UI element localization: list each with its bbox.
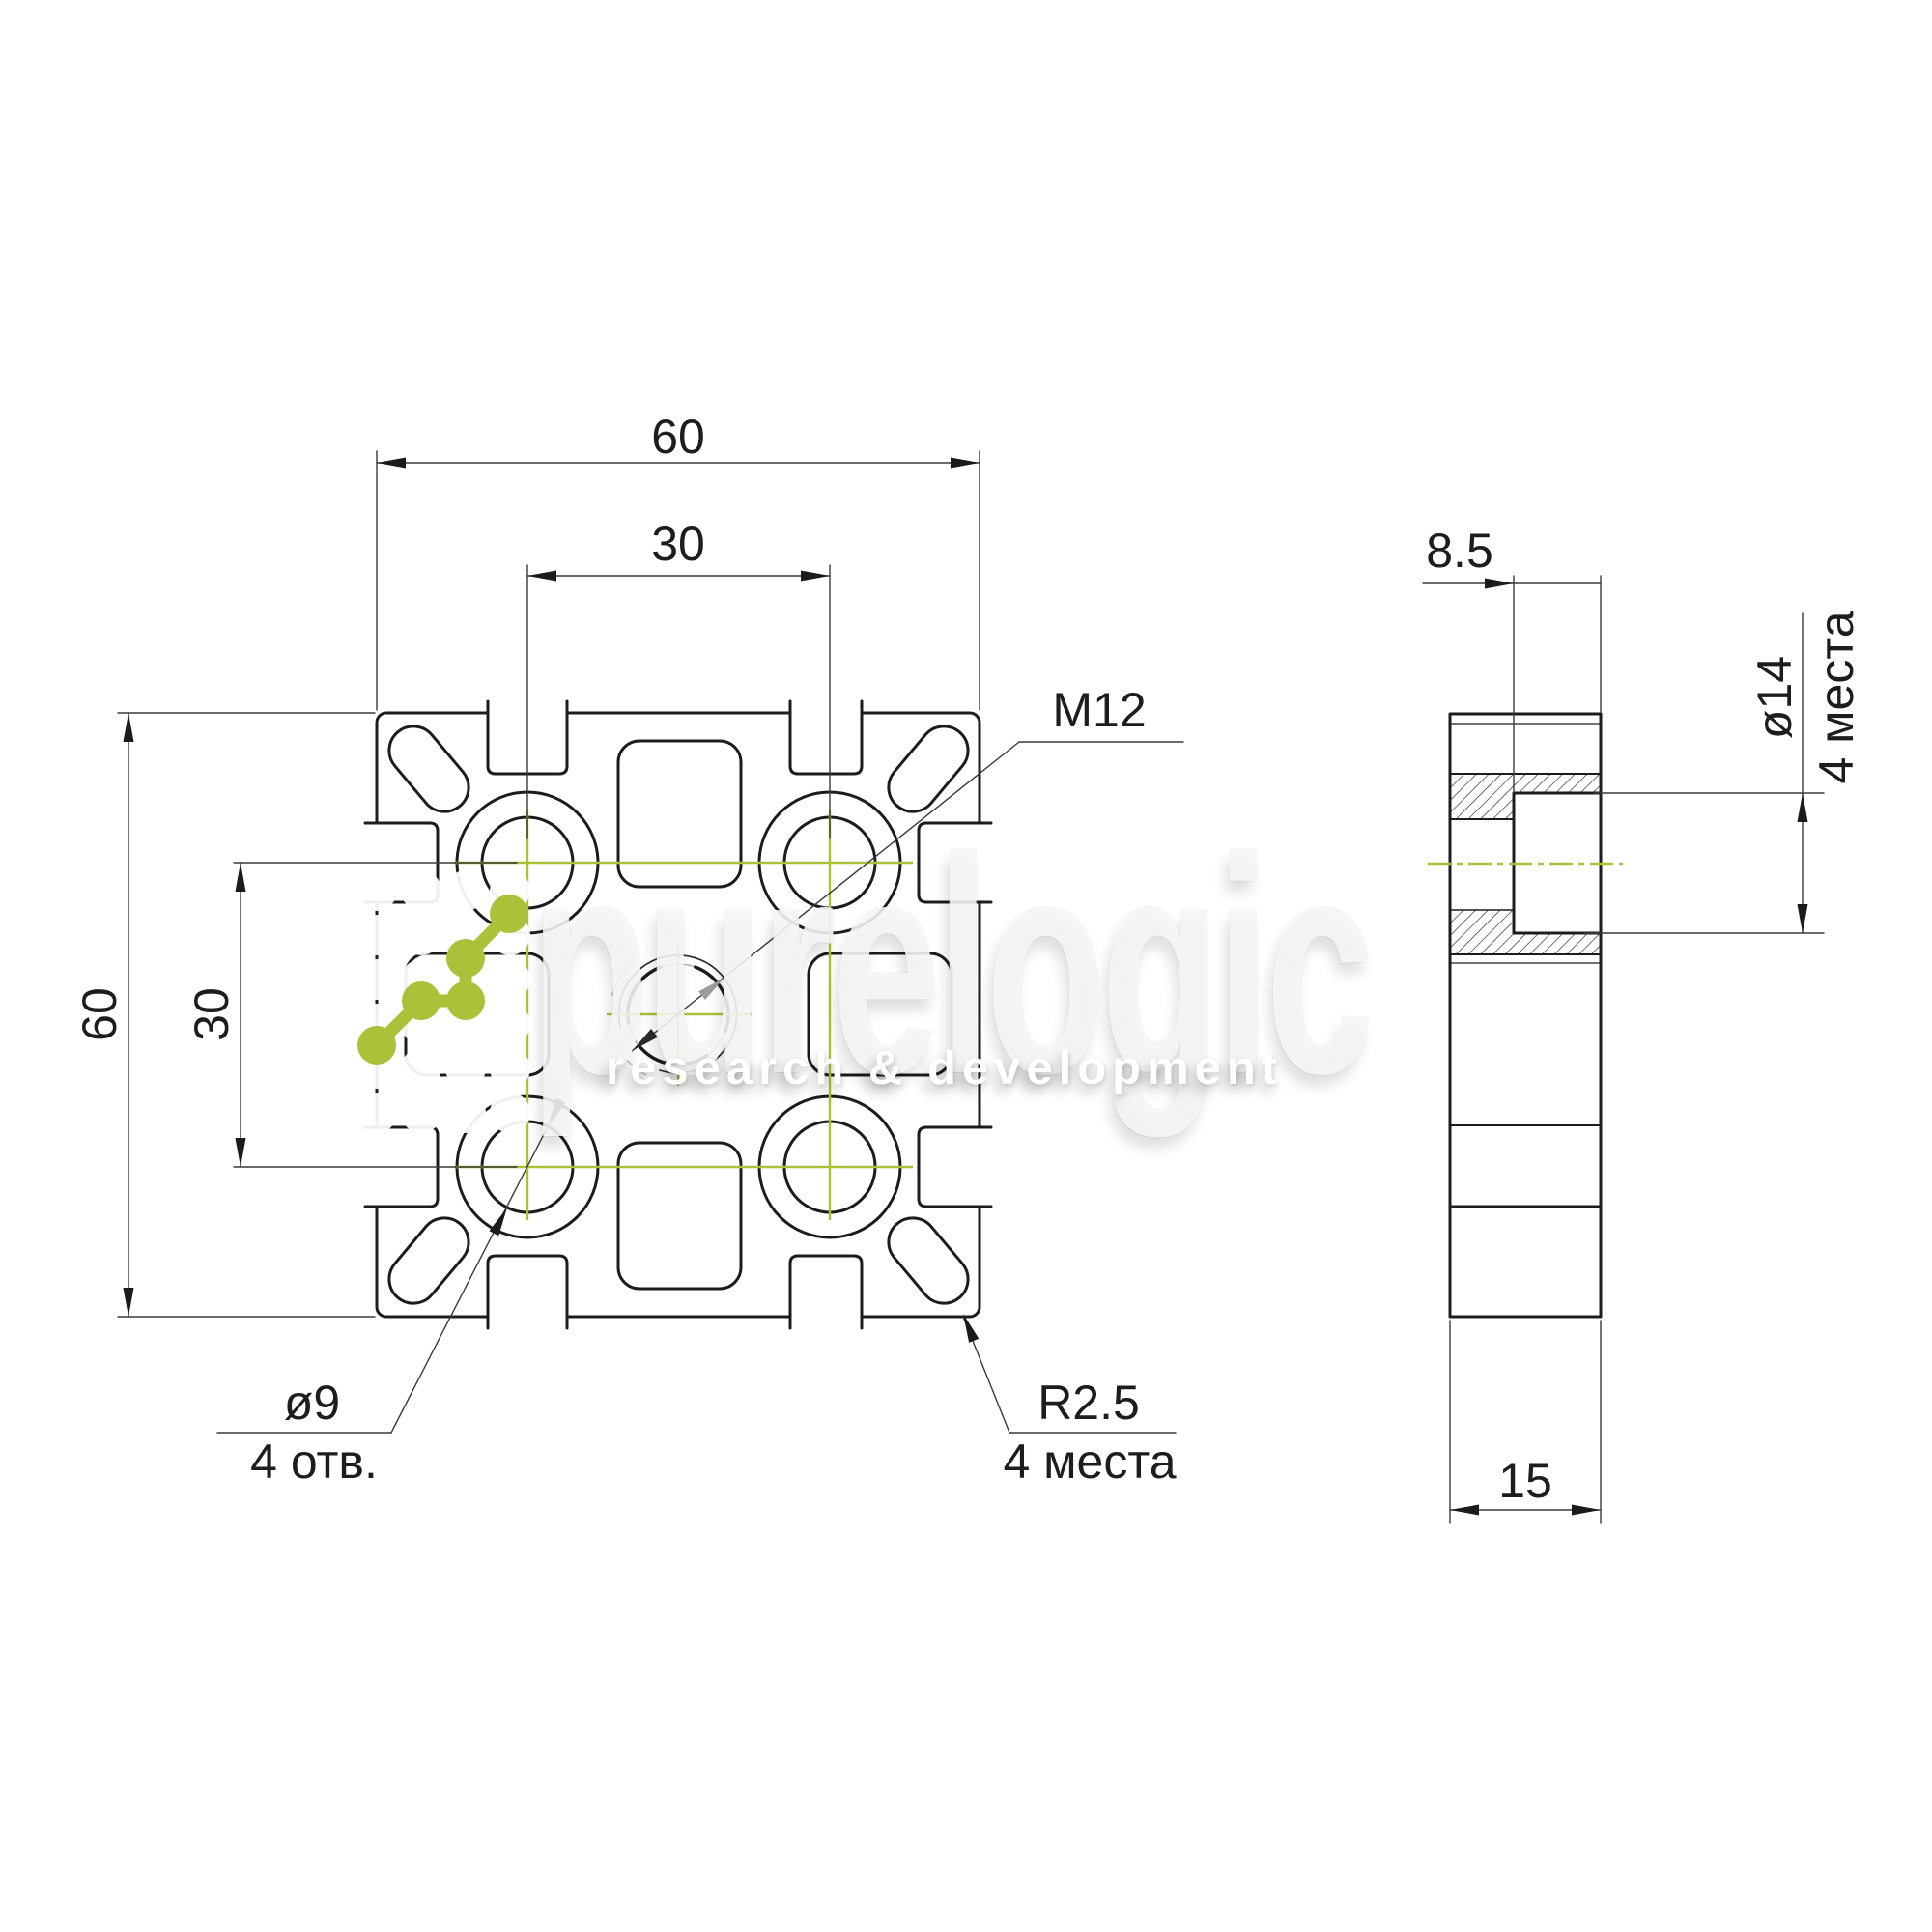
pocket xyxy=(618,1143,741,1289)
arrowhead xyxy=(236,863,246,892)
arrowhead xyxy=(1450,1505,1479,1516)
side-view xyxy=(1450,714,1601,1317)
drawing-page: 60 30 60 30 M12 ø9 4 отв. R2.5 4 места 8… xyxy=(0,0,1932,1932)
arrowhead xyxy=(951,458,980,469)
counterbore-qty-label: 4 места xyxy=(1808,611,1864,783)
corner-radius-qty-label: 4 места xyxy=(1003,1434,1176,1490)
edge-notch xyxy=(790,701,862,774)
edge-notch xyxy=(919,823,991,902)
thread-label: M12 xyxy=(1052,682,1146,738)
counterbore-dia-label: ø14 xyxy=(1747,656,1803,739)
dim-thickness: 15 xyxy=(1498,1453,1552,1509)
dim-counterbore-depth: 8.5 xyxy=(1426,523,1493,579)
arrowhead xyxy=(377,458,406,469)
edge-notch xyxy=(790,1256,862,1328)
arrowhead xyxy=(1572,1505,1601,1516)
technical-drawing xyxy=(0,0,1932,1932)
arrowhead xyxy=(527,571,556,582)
corner-radius-label: R2.5 xyxy=(1037,1375,1140,1431)
dim-spacing-left: 30 xyxy=(184,987,240,1041)
arrowhead xyxy=(236,1138,246,1167)
edge-notch xyxy=(488,1256,567,1328)
arrowhead xyxy=(1798,904,1808,933)
dim-width-top: 60 xyxy=(651,409,705,465)
pocket xyxy=(618,741,741,887)
arrowhead xyxy=(1798,793,1808,822)
arrowhead xyxy=(1485,579,1514,589)
hole-qty-label: 4 отв. xyxy=(250,1434,378,1490)
dim-spacing-top: 30 xyxy=(651,516,705,572)
hole-dia-label: ø9 xyxy=(284,1375,340,1431)
dim-height-left: 60 xyxy=(71,987,128,1041)
edge-notch xyxy=(919,1127,991,1207)
arrowhead xyxy=(801,571,830,582)
arrowhead xyxy=(124,1288,134,1317)
arrowhead xyxy=(124,713,134,742)
